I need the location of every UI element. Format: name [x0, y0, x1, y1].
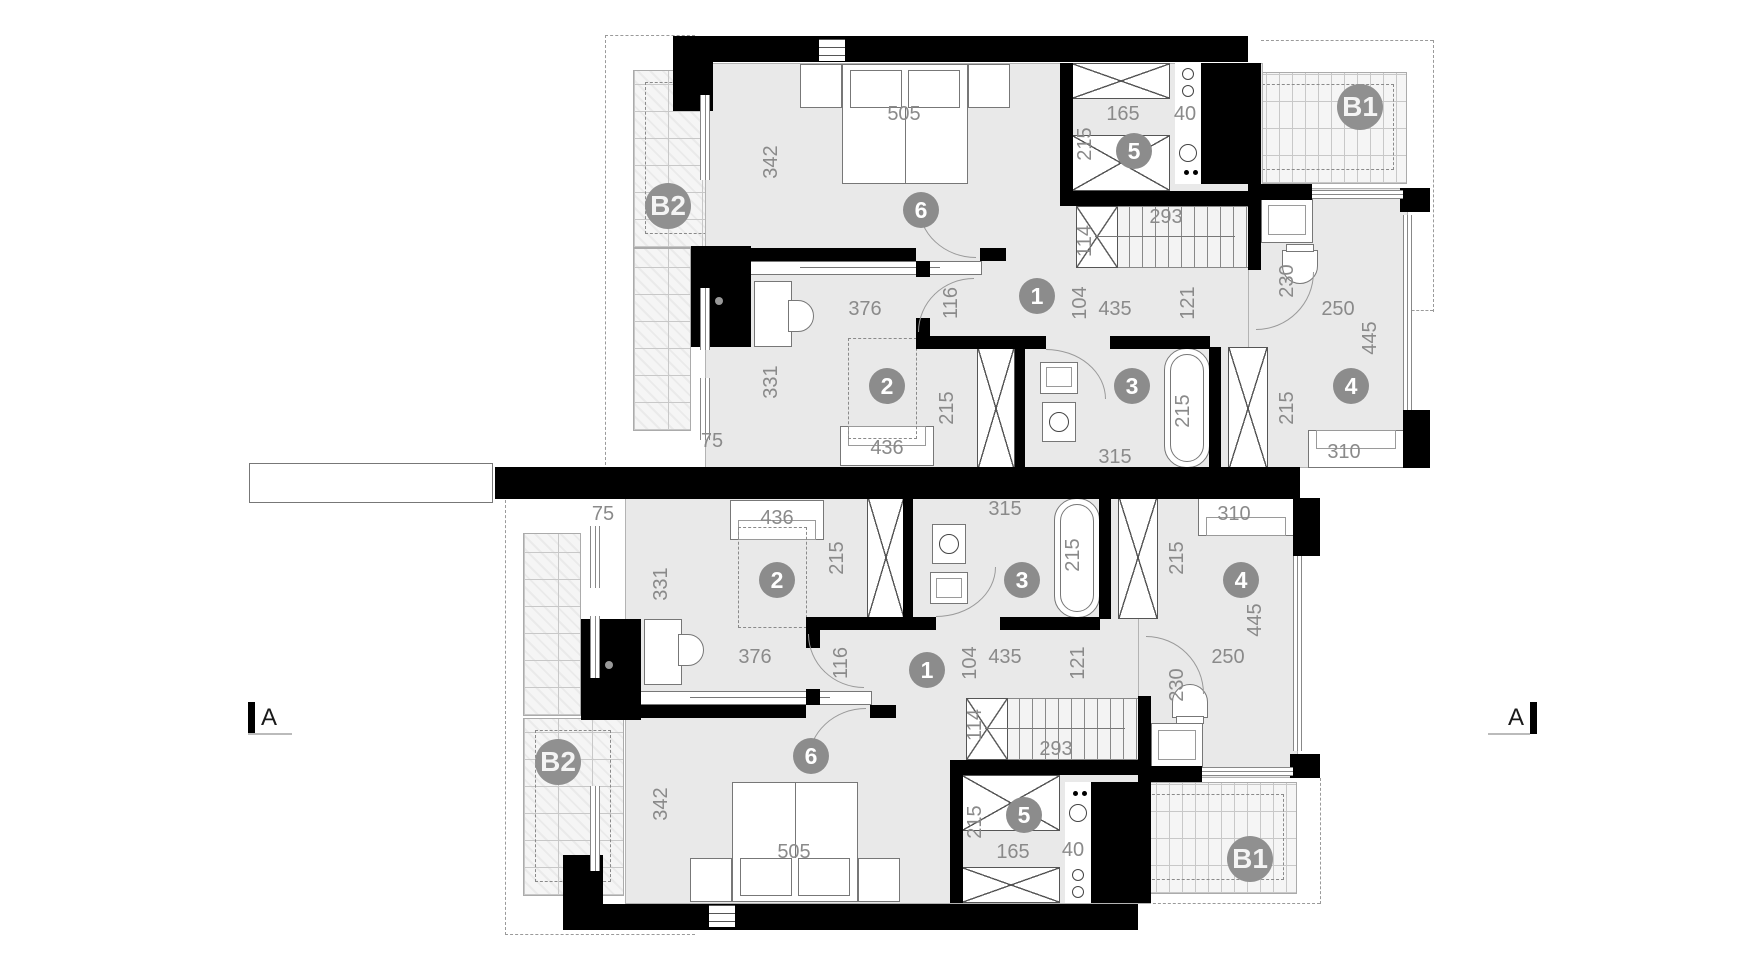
closet: [1072, 63, 1170, 99]
dimension-label: 445: [1245, 603, 1265, 636]
disc: [605, 661, 613, 669]
wall: [1060, 191, 1252, 206]
nightstand: [690, 858, 732, 902]
wall: [1293, 498, 1320, 556]
inner: [1268, 205, 1306, 235]
dimension-label: 505: [887, 104, 920, 124]
window-v: [700, 288, 710, 350]
dimension-label: 310: [1327, 442, 1360, 462]
toilet-tank: [1286, 244, 1314, 252]
room-marker-5: 5: [1116, 133, 1152, 169]
dimension-label: 310: [1217, 504, 1250, 524]
wall: [950, 760, 963, 903]
dimension-label: 215: [1167, 541, 1187, 574]
nightstand: [800, 64, 842, 108]
disc: [1184, 170, 1189, 175]
nightstand: [858, 858, 900, 902]
room-marker-4: 4: [1333, 368, 1369, 404]
wall: [1403, 410, 1430, 468]
wall: [1138, 766, 1202, 782]
terrace-b2-top-strip: [633, 248, 691, 431]
section-bar: [1530, 702, 1537, 734]
room-marker-6: 6: [793, 738, 829, 774]
closet: [1118, 496, 1158, 619]
washer: [1072, 869, 1084, 881]
wall: [1201, 63, 1261, 184]
room-marker-5: 5: [1006, 797, 1042, 833]
wall: [950, 760, 1142, 775]
wall: [1248, 191, 1261, 270]
disc: [1082, 791, 1087, 796]
wall: [1400, 188, 1430, 212]
dash-h: [505, 934, 695, 935]
wall: [1110, 336, 1210, 349]
wall: [1091, 782, 1151, 903]
terrace-badge-b1: B1: [1337, 84, 1383, 130]
dimension-label: 436: [870, 438, 903, 458]
wall: [806, 689, 820, 705]
dimension-label: 215: [1173, 394, 1193, 427]
room-marker-1: 1: [909, 652, 945, 688]
window-v: [1403, 215, 1412, 410]
dash-v: [1433, 40, 1434, 312]
dimension-label: 293: [1039, 739, 1072, 759]
dimension-label: 215: [937, 391, 957, 424]
wall: [980, 248, 1006, 261]
dimension-label: 342: [651, 787, 671, 820]
wall: [916, 261, 930, 277]
party-wall: [495, 467, 1300, 499]
nightstand: [968, 64, 1010, 108]
dimension-label: 75: [701, 431, 723, 451]
room-marker-3: 3: [1114, 368, 1150, 404]
closet: [867, 496, 905, 619]
dimension-label: 116: [941, 287, 961, 319]
dimension-label: 215: [1063, 538, 1083, 571]
wall: [1099, 496, 1111, 619]
disc: [1193, 170, 1198, 175]
room-marker-3: 3: [1004, 562, 1040, 598]
ring: [1049, 412, 1069, 432]
dimension-label: 121: [1068, 646, 1088, 679]
window-v: [590, 526, 600, 588]
section-marker-left: A: [248, 702, 308, 742]
window-v: [700, 95, 710, 180]
dimension-label: 436: [760, 508, 793, 528]
wall: [806, 617, 936, 630]
dimension-label: 215: [1075, 127, 1095, 160]
wall: [1138, 696, 1151, 775]
terrace-badge-b2: B2: [535, 739, 581, 785]
washer: [1182, 68, 1194, 80]
disc: [715, 297, 723, 305]
dash-h: [1261, 40, 1433, 41]
dash-h: [1138, 903, 1320, 904]
wall: [903, 496, 913, 619]
section-label: A: [261, 704, 277, 732]
wall: [1015, 347, 1025, 470]
window-v: [590, 616, 600, 678]
wall: [1000, 617, 1100, 630]
dimension-label: 342: [761, 145, 781, 178]
wall: [1290, 754, 1320, 778]
disc: [1073, 791, 1078, 796]
dimension-label: 250: [1211, 647, 1244, 667]
dimension-label: 435: [1098, 299, 1131, 319]
dimension-label: 445: [1360, 321, 1380, 354]
dimension-label: 293: [1149, 207, 1182, 227]
room-marker-4: 4: [1223, 562, 1259, 598]
section-element: [249, 463, 493, 503]
dimension-label: 435: [988, 647, 1021, 667]
dimension-label: 40: [1062, 840, 1084, 860]
section-marker-right: A: [1478, 702, 1538, 742]
washer: [1069, 804, 1087, 822]
pillow: [740, 858, 792, 896]
wall: [916, 336, 1046, 349]
dimension-label: 40: [1174, 104, 1196, 124]
dimension-label: 376: [848, 299, 881, 319]
dimension-label: 331: [651, 567, 671, 600]
dimension-label: 215: [1277, 391, 1297, 424]
wardrobe: [750, 261, 982, 275]
dimension-label: 315: [988, 499, 1021, 519]
section-underline: [1488, 733, 1530, 735]
dimension-label: 75: [592, 504, 614, 524]
dimension-label: 165: [996, 842, 1029, 862]
ring: [939, 534, 959, 554]
dimension-label: 215: [965, 805, 985, 838]
desk: [754, 281, 792, 347]
dimension-label: 114: [965, 709, 985, 741]
wall: [1060, 63, 1073, 206]
dimension-label: 315: [1098, 447, 1131, 467]
washer: [1179, 144, 1197, 162]
dash-v: [1320, 778, 1321, 904]
section-underline: [248, 733, 292, 735]
ladder: [818, 38, 846, 62]
dimension-label: 116: [831, 647, 851, 679]
inner: [1158, 730, 1196, 760]
room-marker-2: 2: [869, 368, 905, 404]
dimension-label: 165: [1106, 104, 1139, 124]
dimension-label: 331: [761, 365, 781, 398]
wall: [603, 705, 806, 718]
pillow: [798, 858, 850, 896]
window-h: [1202, 767, 1293, 776]
closet: [1228, 347, 1268, 470]
dimension-label: 104: [960, 646, 980, 679]
wardrobe: [640, 691, 872, 705]
dimension-label: 505: [777, 842, 810, 862]
terrace-b2-bottom-strip: [523, 533, 581, 716]
closet: [962, 867, 1060, 903]
room-marker-1: 1: [1019, 278, 1055, 314]
section-bar: [248, 702, 255, 734]
dimension-label: 230: [1167, 668, 1187, 701]
dimension-label: 376: [738, 647, 771, 667]
dash-v: [605, 35, 606, 470]
wall: [1209, 347, 1221, 470]
wall: [1248, 184, 1312, 200]
dimension-label: 121: [1178, 286, 1198, 319]
wall: [568, 904, 1138, 930]
window-v: [590, 786, 600, 871]
floor-plan-canvas: A A 505342165402152931143761161044351212…: [0, 0, 1745, 966]
line-h: [985, 728, 1125, 729]
dash-v: [505, 500, 506, 935]
wall: [713, 248, 916, 261]
dimension-label: 215: [827, 541, 847, 574]
dimension-label: 230: [1277, 264, 1297, 297]
closet: [977, 347, 1015, 470]
dimension-label: 104: [1070, 286, 1090, 319]
line-h: [1095, 236, 1235, 237]
section-label: A: [1508, 704, 1524, 732]
dimension-label: 114: [1075, 225, 1095, 257]
room-marker-2: 2: [759, 562, 795, 598]
window-h: [1312, 190, 1403, 199]
window-v: [1293, 556, 1302, 751]
dimension-label: 250: [1321, 299, 1354, 319]
washer: [1072, 886, 1084, 898]
ladder: [708, 904, 736, 928]
washer: [1182, 85, 1194, 97]
terrace-badge-b1: B1: [1227, 836, 1273, 882]
terrace-badge-b2: B2: [645, 183, 691, 229]
desk: [644, 619, 682, 685]
room-marker-6: 6: [903, 192, 939, 228]
wall: [870, 705, 896, 718]
wall: [678, 36, 1248, 62]
